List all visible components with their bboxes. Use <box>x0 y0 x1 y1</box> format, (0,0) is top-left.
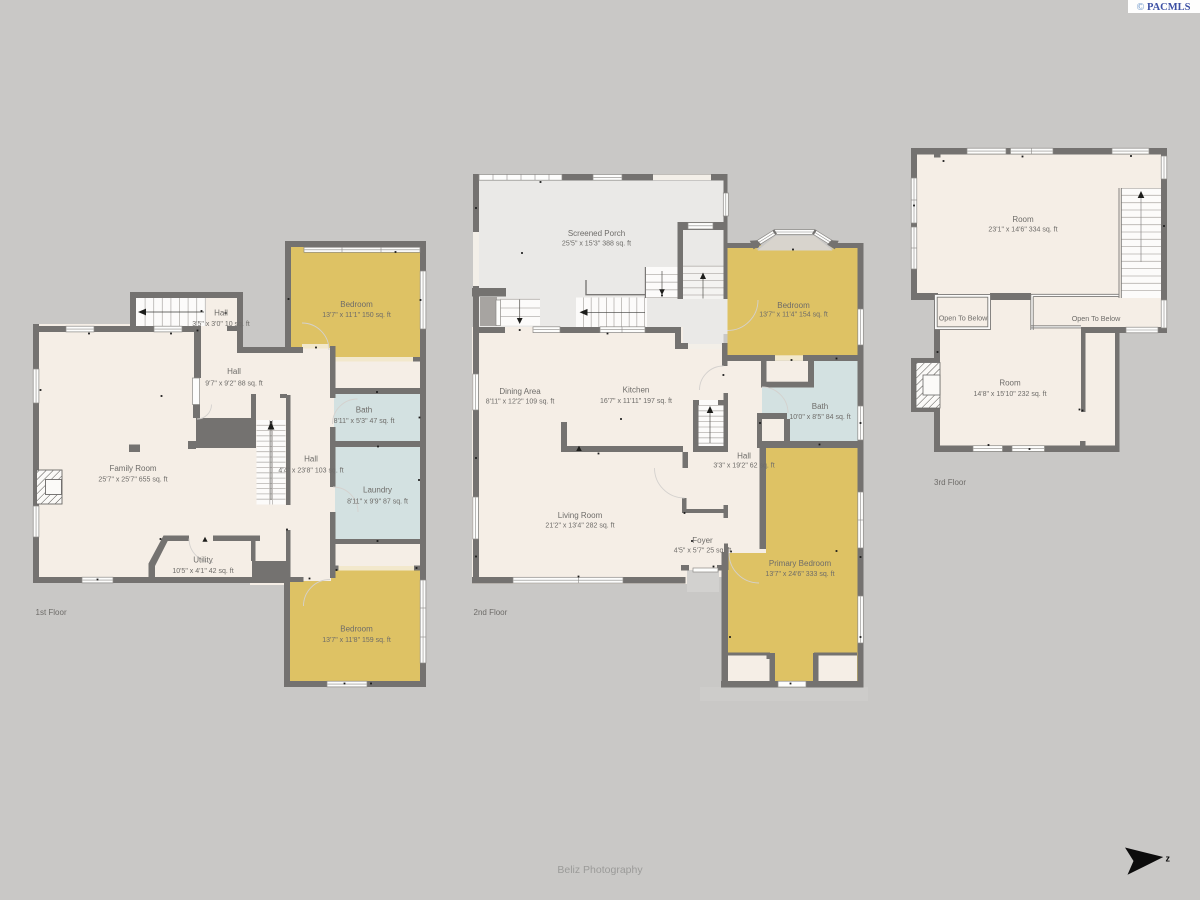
svg-text:10'5" x 4'1" 42 sq. ft: 10'5" x 4'1" 42 sq. ft <box>172 568 233 575</box>
svg-text:© PACMLS: © PACMLS <box>1136 2 1190 13</box>
svg-text:16'7" x 11'11" 197 sq. ft: 16'7" x 11'11" 197 sq. ft <box>600 398 672 405</box>
svg-text:2nd Floor: 2nd Floor <box>474 608 508 617</box>
svg-text:Open To Below: Open To Below <box>1072 314 1121 323</box>
svg-text:Foyer: Foyer <box>692 536 713 545</box>
svg-text:Utility: Utility <box>193 556 213 565</box>
svg-text:Bath: Bath <box>356 406 372 415</box>
svg-text:Hall: Hall <box>304 455 318 464</box>
svg-text:Dining Area: Dining Area <box>499 387 541 396</box>
svg-text:Family Room: Family Room <box>109 464 156 473</box>
svg-text:4'4" x 23'8" 103 sq. ft: 4'4" x 23'8" 103 sq. ft <box>278 468 343 475</box>
svg-text:Screened Porch: Screened Porch <box>568 229 625 238</box>
svg-text:4'5" x 5'7" 25 sq. ft: 4'5" x 5'7" 25 sq. ft <box>674 548 732 555</box>
svg-text:8'11" x 5'3" 47 sq. ft: 8'11" x 5'3" 47 sq. ft <box>334 418 395 425</box>
svg-text:13'7" x 24'6" 333 sq. ft: 13'7" x 24'6" 333 sq. ft <box>765 571 834 578</box>
svg-text:9'7" x 9'2" 88 sq. ft: 9'7" x 9'2" 88 sq. ft <box>205 381 263 388</box>
svg-text:13'7" x 11'4" 154 sq. ft: 13'7" x 11'4" 154 sq. ft <box>759 312 828 319</box>
svg-text:Hall: Hall <box>737 452 751 461</box>
svg-text:23'1" x 14'6" 334 sq. ft: 23'1" x 14'6" 334 sq. ft <box>988 227 1057 234</box>
svg-text:8'11" x 12'2" 109 sq. ft: 8'11" x 12'2" 109 sq. ft <box>486 399 555 406</box>
svg-text:Hall: Hall <box>227 367 241 376</box>
svg-text:10'0" x 8'5" 84 sq. ft: 10'0" x 8'5" 84 sq. ft <box>789 414 850 421</box>
svg-text:3rd Floor: 3rd Floor <box>934 478 966 487</box>
svg-text:Kitchen: Kitchen <box>623 386 650 395</box>
svg-text:13'7" x 11'8" 159 sq. ft: 13'7" x 11'8" 159 sq. ft <box>322 637 391 644</box>
svg-text:14'8" x 15'10" 232 sq. ft: 14'8" x 15'10" 232 sq. ft <box>973 391 1046 398</box>
svg-text:Beliz Photography: Beliz Photography <box>557 864 643 876</box>
svg-text:Living Room: Living Room <box>558 511 603 520</box>
svg-text:21'2" x 13'4" 282 sq. ft: 21'2" x 13'4" 282 sq. ft <box>545 523 614 530</box>
svg-text:Room: Room <box>999 379 1021 388</box>
svg-text:Room: Room <box>1012 215 1034 224</box>
svg-text:Bedroom: Bedroom <box>777 301 810 310</box>
svg-text:Laundry: Laundry <box>363 486 392 495</box>
svg-text:13'7" x 11'1" 150 sq. ft: 13'7" x 11'1" 150 sq. ft <box>322 312 391 319</box>
svg-text:3'3" x 19'2" 62 sq. ft: 3'3" x 19'2" 62 sq. ft <box>713 463 774 470</box>
svg-text:Bedroom: Bedroom <box>340 300 373 309</box>
svg-text:Bedroom: Bedroom <box>340 625 373 634</box>
svg-text:8'11" x 9'9" 87 sq. ft: 8'11" x 9'9" 87 sq. ft <box>347 499 408 506</box>
svg-text:Hall: Hall <box>214 309 228 318</box>
svg-text:25'7" x 25'7" 655 sq. ft: 25'7" x 25'7" 655 sq. ft <box>98 477 167 484</box>
svg-text:z: z <box>1166 854 1171 864</box>
svg-text:Open To Below: Open To Below <box>939 314 988 323</box>
svg-text:Primary Bedroom: Primary Bedroom <box>769 559 832 568</box>
svg-text:3'5" x 3'0" 10 sq. ft: 3'5" x 3'0" 10 sq. ft <box>192 321 250 328</box>
svg-text:1st Floor: 1st Floor <box>36 608 67 617</box>
svg-text:Bath: Bath <box>812 402 828 411</box>
svg-text:25'5" x 15'3" 388 sq. ft: 25'5" x 15'3" 388 sq. ft <box>562 241 631 248</box>
